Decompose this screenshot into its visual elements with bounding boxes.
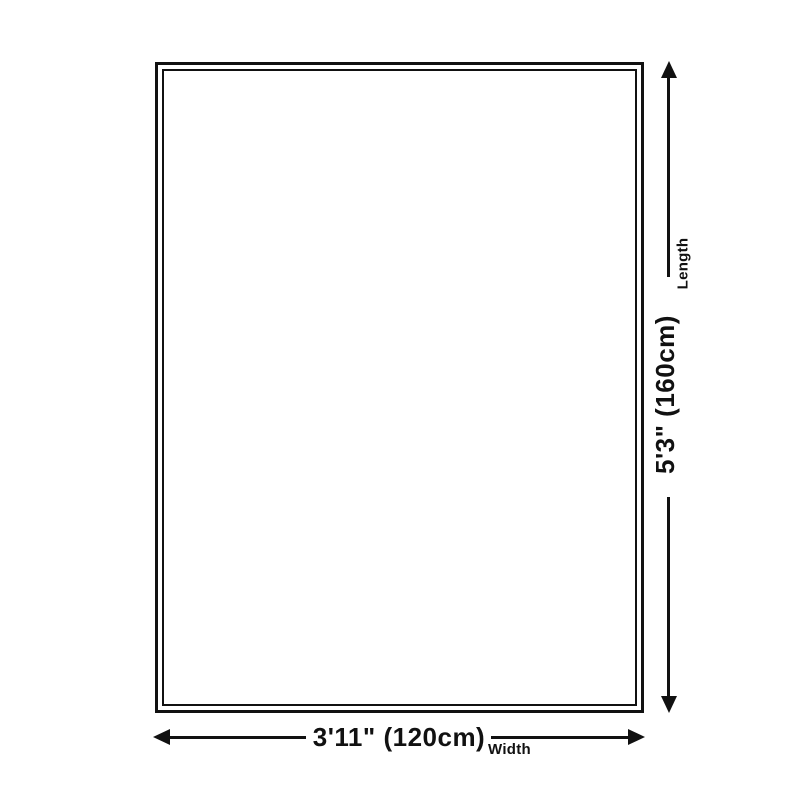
length-arrow-line-bottom (667, 497, 670, 698)
product-outline-outer-border (155, 62, 644, 713)
product-dimension-diagram: Length 5'3" (160cm) 3'11" (120cm) Width (0, 0, 800, 800)
product-outline-inner-border (162, 69, 637, 706)
width-value: 3'11" (120cm) (309, 722, 489, 753)
width-arrow-right-icon (628, 729, 645, 745)
width-arrow-line-right (491, 736, 629, 739)
length-label-text: Length (675, 237, 692, 289)
length-arrow-down-icon (661, 696, 677, 713)
length-arrow-up-icon (661, 61, 677, 78)
length-value-text: 5'3" (160cm) (650, 315, 681, 474)
length-label: Length (669, 234, 697, 292)
width-label: Width (488, 741, 531, 758)
width-arrow-line-left (169, 736, 306, 739)
length-value: 5'3" (160cm) (646, 308, 684, 480)
width-arrow-left-icon (153, 729, 170, 745)
